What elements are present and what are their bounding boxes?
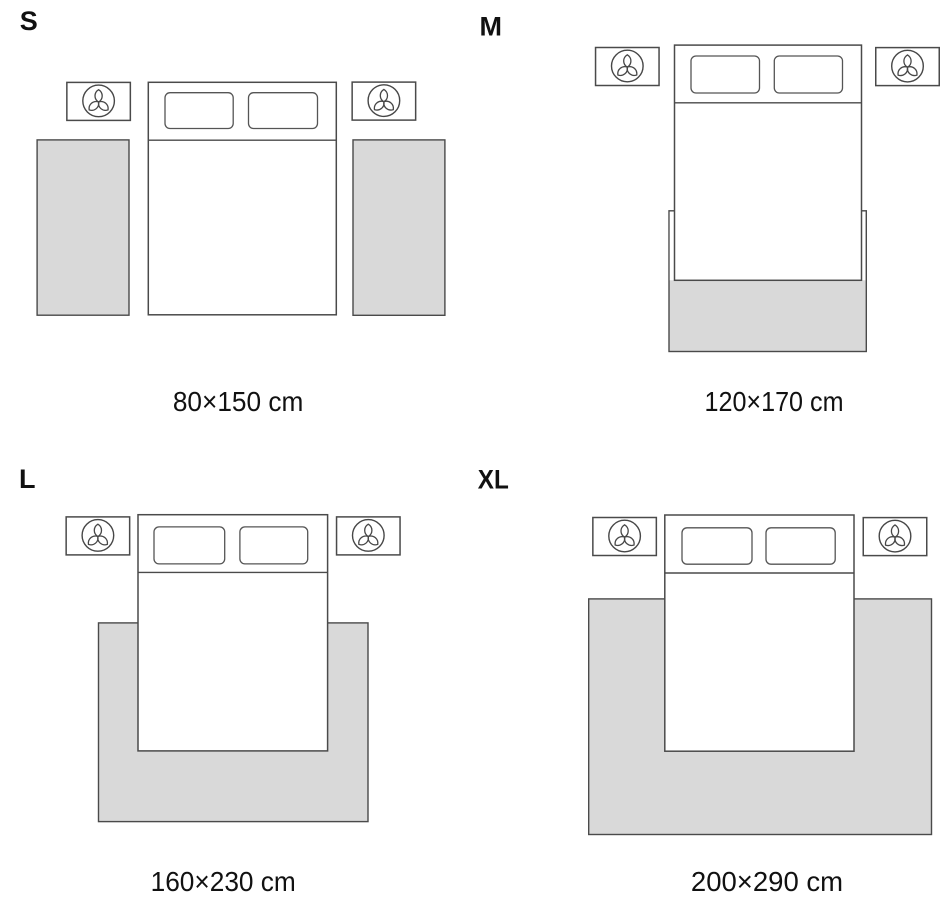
svg-text:120×170 cm: 120×170 cm [705, 386, 844, 417]
svg-text:M: M [480, 12, 503, 42]
svg-text:160×230 cm: 160×230 cm [151, 866, 296, 897]
svg-text:80×150 cm: 80×150 cm [173, 386, 304, 417]
svg-text:L: L [19, 464, 36, 494]
svg-text:200×290 cm: 200×290 cm [691, 866, 843, 897]
svg-text:S: S [20, 6, 38, 36]
svg-text:XL: XL [478, 465, 509, 495]
